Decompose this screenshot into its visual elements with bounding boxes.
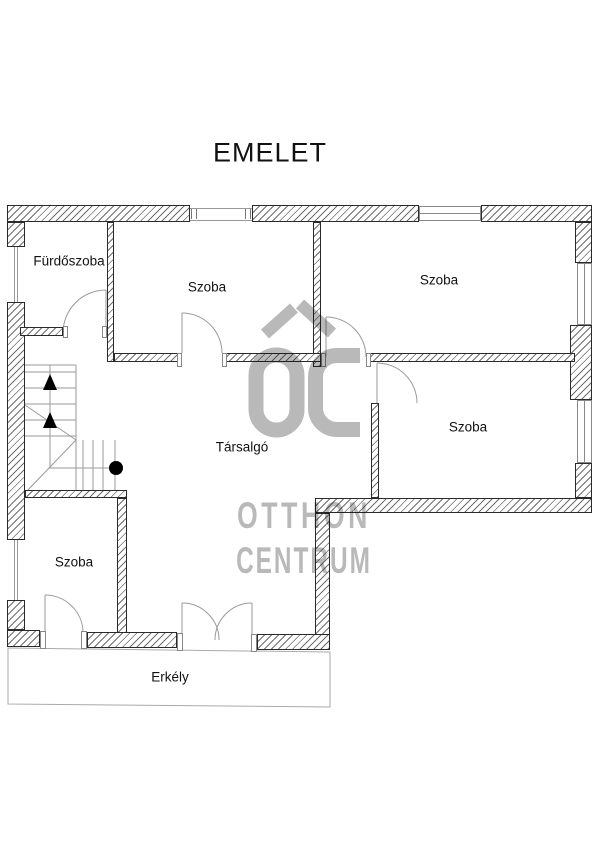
room-bottom-left-door — [45, 595, 83, 633]
wall-stairs-bottom — [25, 490, 127, 498]
wall-bottom-right — [315, 498, 592, 513]
window-right-2 — [577, 400, 592, 463]
wall-left-c — [7, 600, 25, 630]
door-jamb — [177, 353, 182, 367]
window-top-1 — [190, 208, 252, 221]
door-jamb — [102, 326, 107, 338]
wall-top-c — [481, 205, 592, 222]
room-top-left-door — [182, 313, 222, 353]
wall-bathroom-room — [107, 222, 114, 362]
wall-rooms-bottom-c — [366, 353, 575, 362]
door-jamb — [81, 631, 87, 649]
stair-post-dot — [109, 461, 123, 475]
window-tick — [191, 209, 197, 219]
wall-right-b — [570, 325, 592, 400]
door-jamb — [222, 353, 227, 367]
wall-rooms-bottom-b — [222, 353, 321, 362]
room-label-balcony: Erkély — [151, 670, 189, 685]
wall-bottom-b — [87, 632, 177, 648]
wall-right-a — [575, 222, 592, 263]
bathroom-door — [63, 290, 106, 333]
door-arcs — [45, 290, 417, 640]
floor-plan-linework — [0, 0, 600, 848]
wall-rooms-divider — [313, 222, 321, 367]
door-jamb — [40, 631, 46, 649]
balcony-double-door — [182, 603, 252, 640]
wall-lounge-right — [315, 513, 330, 650]
room-label-bathroom: Fürdőszoba — [33, 254, 104, 269]
window-top-2 — [419, 206, 481, 221]
room-mid-right-door — [377, 363, 417, 403]
window-left-1 — [8, 247, 24, 302]
door-jamb — [321, 353, 326, 367]
wall-bottomroom-right — [117, 498, 127, 633]
stairs — [25, 365, 115, 493]
room-label-top-left: Szoba — [188, 280, 226, 295]
door-jamb — [63, 326, 68, 338]
wall-right-c — [575, 463, 592, 498]
wall-bottom-c — [257, 634, 330, 650]
wall-midroom-left — [371, 403, 379, 498]
wall-left-b — [7, 302, 25, 540]
wall-bathroom-bottom — [20, 327, 63, 336]
room-label-mid-right: Szoba — [449, 420, 487, 435]
wall-top-a — [7, 205, 190, 222]
window-left-2 — [8, 540, 24, 600]
room-top-right-door — [326, 317, 366, 357]
wall-left-a — [7, 222, 25, 247]
door-jamb — [366, 353, 371, 367]
floor-plan: EMELET Fürdőszoba Szoba Szoba Szoba Szob… — [0, 0, 600, 848]
room-label-lounge: Társalgó — [216, 440, 269, 455]
window-right-1 — [577, 263, 592, 325]
room-label-top-right: Szoba — [420, 273, 458, 288]
door-jamb — [177, 633, 183, 651]
window-tick — [245, 209, 251, 219]
wall-bottom-corner — [7, 630, 40, 647]
wall-rooms-bottom-a — [114, 353, 182, 362]
wall-top-b — [252, 205, 419, 222]
room-label-bottom-left: Szoba — [55, 555, 93, 570]
door-jamb — [251, 634, 257, 652]
page-title: EMELET — [213, 138, 327, 169]
